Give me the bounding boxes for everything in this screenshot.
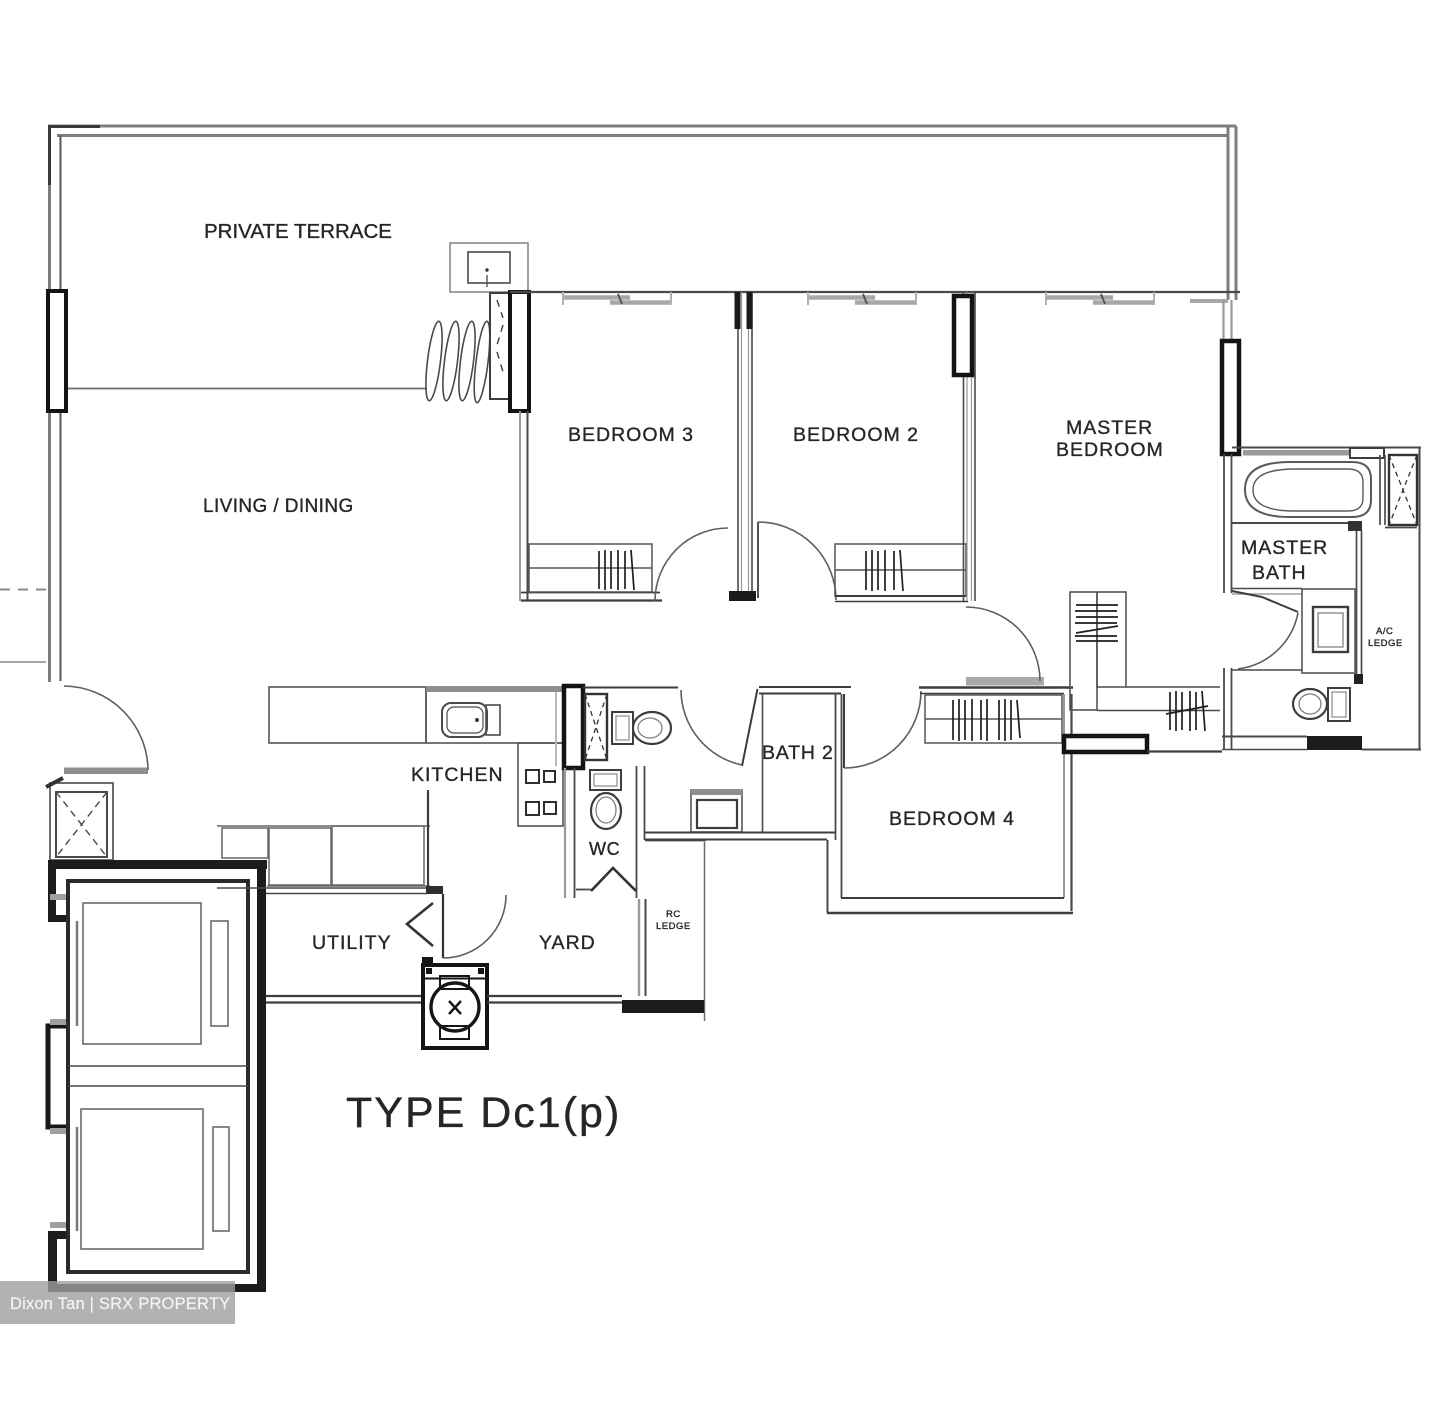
- svg-text:LEDGE: LEDGE: [656, 921, 691, 932]
- svg-text:A/C: A/C: [1376, 626, 1393, 637]
- svg-text:LEDGE: LEDGE: [1368, 638, 1403, 649]
- svg-text:BATH 2: BATH 2: [762, 742, 834, 764]
- svg-text:WC: WC: [589, 839, 620, 859]
- svg-text:Dixon Tan | SRX PROPERTY: Dixon Tan | SRX PROPERTY: [10, 1295, 230, 1313]
- svg-text:BEDROOM 3: BEDROOM 3: [568, 424, 694, 446]
- svg-text:KITCHEN: KITCHEN: [411, 764, 504, 786]
- svg-text:TYPE Dc1(p): TYPE Dc1(p): [346, 1089, 621, 1137]
- svg-text:MASTER: MASTER: [1241, 537, 1328, 559]
- svg-text:BATH: BATH: [1252, 562, 1307, 584]
- svg-text:LIVING / DINING: LIVING / DINING: [203, 496, 354, 517]
- svg-text:BEDROOM 4: BEDROOM 4: [889, 808, 1015, 830]
- svg-text:MASTER: MASTER: [1066, 417, 1153, 439]
- svg-text:YARD: YARD: [539, 932, 596, 954]
- svg-text:UTILITY: UTILITY: [312, 932, 392, 954]
- svg-text:PRIVATE TERRACE: PRIVATE TERRACE: [204, 220, 392, 243]
- svg-text:BEDROOM 2: BEDROOM 2: [793, 424, 919, 446]
- svg-text:RC: RC: [666, 909, 681, 920]
- svg-text:BEDROOM: BEDROOM: [1056, 439, 1164, 461]
